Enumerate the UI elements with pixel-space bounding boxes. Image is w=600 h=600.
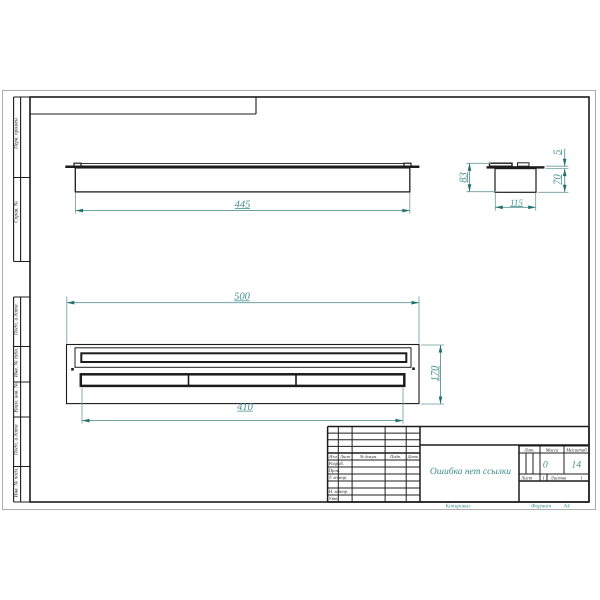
svg-text:Масса: Масса [545, 448, 559, 454]
svg-text:Перв. примен.: Перв. примен. [14, 117, 20, 150]
svg-text:Лит.: Лит. [523, 448, 534, 454]
svg-text:Копировал: Копировал [445, 503, 472, 509]
svg-text:№ докум.: № докум. [359, 454, 377, 459]
svg-text:Дата: Дата [407, 454, 419, 459]
svg-text:Инв. № дубл.: Инв. № дубл. [14, 348, 20, 378]
svg-text:А4: А4 [563, 503, 570, 509]
svg-text:Подп. и дата: Подп. и дата [14, 424, 20, 456]
svg-text:0: 0 [543, 459, 548, 470]
svg-text:Ошибка нет ссылки: Ошибка нет ссылки [430, 467, 511, 477]
svg-text:Справ. №: Справ. № [14, 201, 20, 223]
svg-text:115: 115 [510, 198, 523, 208]
svg-text:Разраб.: Разраб. [328, 461, 344, 467]
svg-text:Формат: Формат [531, 503, 551, 509]
svg-text:Лист: Лист [520, 476, 533, 482]
svg-text:Подп.: Подп. [389, 454, 401, 459]
svg-text:Лист: Лист [339, 454, 350, 459]
svg-text:Взам. инв. №: Взам. инв. № [14, 383, 20, 413]
svg-text:Т. контр.: Т. контр. [329, 475, 348, 481]
svg-text:Н. контр.: Н. контр. [328, 489, 349, 495]
svg-text:Масштаб: Масштаб [565, 448, 587, 454]
svg-text:1: 1 [580, 476, 582, 482]
svg-text:Утв.: Утв. [329, 496, 339, 502]
svg-text:1: 1 [542, 476, 544, 482]
svg-text:Изм: Изм [328, 454, 337, 459]
svg-text:14: 14 [571, 459, 581, 470]
svg-text:Пров.: Пров. [328, 468, 341, 474]
svg-text:Подп. и дата: Подп. и дата [14, 304, 20, 336]
svg-text:Инв. № подл.: Инв. № подл. [14, 468, 20, 499]
svg-text:Листов: Листов [550, 476, 567, 482]
